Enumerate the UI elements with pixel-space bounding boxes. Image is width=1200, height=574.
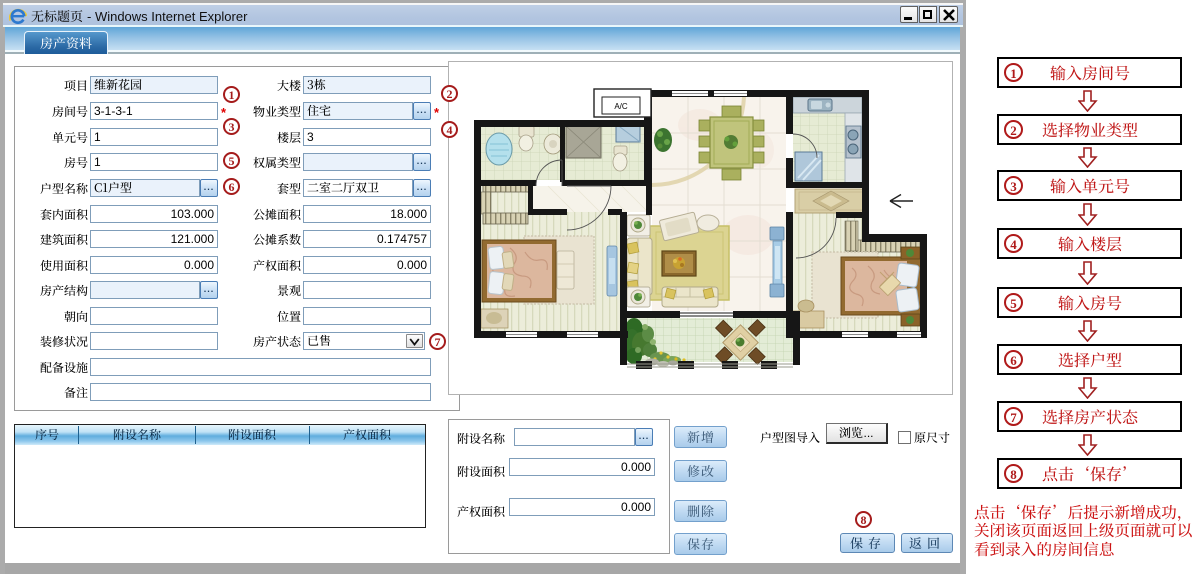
svg-text:A/C: A/C	[614, 102, 628, 111]
